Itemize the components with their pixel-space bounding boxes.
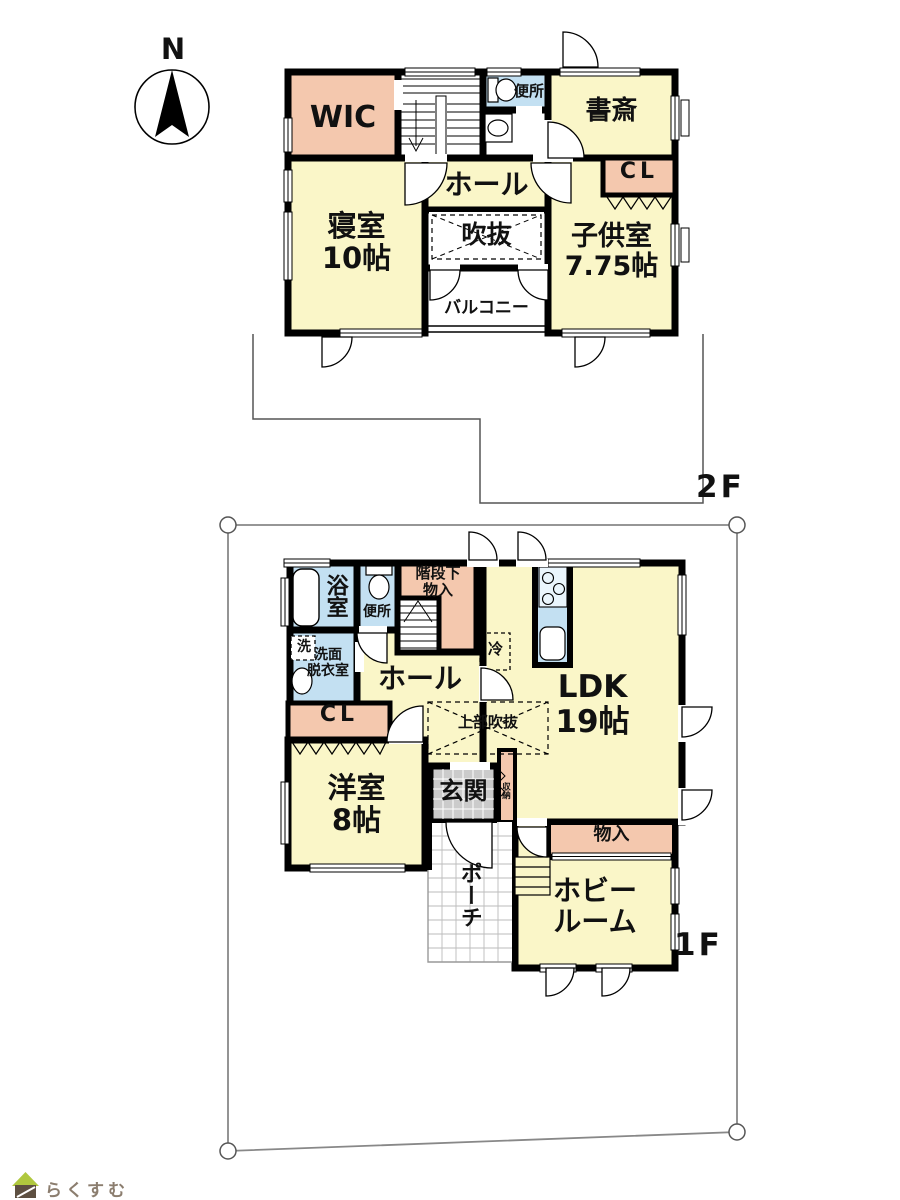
label-kids-size: 7.75帖: [548, 252, 675, 282]
label-closet-1f: CL: [288, 703, 390, 728]
label-toilet-2f: 便所: [508, 83, 550, 100]
label-bedroom: 寝室 10帖: [288, 210, 425, 275]
label-hall-2f: ホール: [425, 169, 548, 200]
label-fridge: 冷: [480, 641, 511, 658]
floorplan-canvas: N 2F 1F WIC 便所 書斎 ホール CL 吹抜 寝室 10帖 子供室 7…: [0, 0, 900, 1200]
label-stair-storage-l2: 物入: [398, 582, 478, 599]
label-western-name: 洋室: [288, 772, 425, 804]
label-bedroom-size: 10帖: [288, 242, 425, 274]
label-bath: 浴室: [322, 574, 347, 618]
label-stair-storage: 階段下 物入: [398, 565, 478, 599]
labels-layer: N 2F 1F WIC 便所 書斎 ホール CL 吹抜 寝室 10帖 子供室 7…: [0, 0, 900, 1200]
label-study: 書斎: [548, 97, 675, 126]
label-hobby-l1: ホビー: [515, 875, 675, 906]
label-western: 洋室 8帖: [288, 772, 425, 837]
label-hobby-l2: ルーム: [515, 906, 675, 937]
label-void: 吹抜: [425, 221, 548, 249]
label-bedroom-name: 寝室: [288, 210, 425, 242]
compass-north-label: N: [155, 33, 191, 65]
label-storage: 物入: [548, 825, 675, 845]
label-toilet-1f: 便所: [355, 605, 399, 621]
label-wic: WIC: [288, 101, 398, 135]
label-entrance: 玄関: [430, 778, 497, 805]
label-porch: ポーチ: [456, 862, 481, 928]
label-kids-name: 子供室: [548, 222, 675, 252]
floor2-label: 2F: [696, 470, 766, 505]
label-hobby: ホビー ルーム: [515, 875, 675, 938]
floor1-label: 1F: [674, 928, 744, 963]
label-washroom-l2: 脱衣室: [300, 664, 356, 680]
label-ldk-name: LDK: [510, 670, 675, 705]
label-hall-1f: ホール: [357, 663, 483, 694]
label-balcony: バルコニー: [425, 299, 548, 318]
label-upper-void: 上部吹抜: [428, 714, 548, 731]
label-washroom-l1: 洗面: [300, 648, 356, 664]
label-western-size: 8帖: [288, 804, 425, 836]
label-shoe-storage: 収納: [500, 782, 510, 799]
label-closet-2f: CL: [603, 160, 675, 185]
label-kids: 子供室 7.75帖: [548, 222, 675, 282]
label-washroom: 洗面 脱衣室: [300, 648, 356, 679]
logo-text: らくすむ: [45, 1176, 129, 1200]
label-stair-storage-l1: 階段下: [398, 565, 478, 582]
